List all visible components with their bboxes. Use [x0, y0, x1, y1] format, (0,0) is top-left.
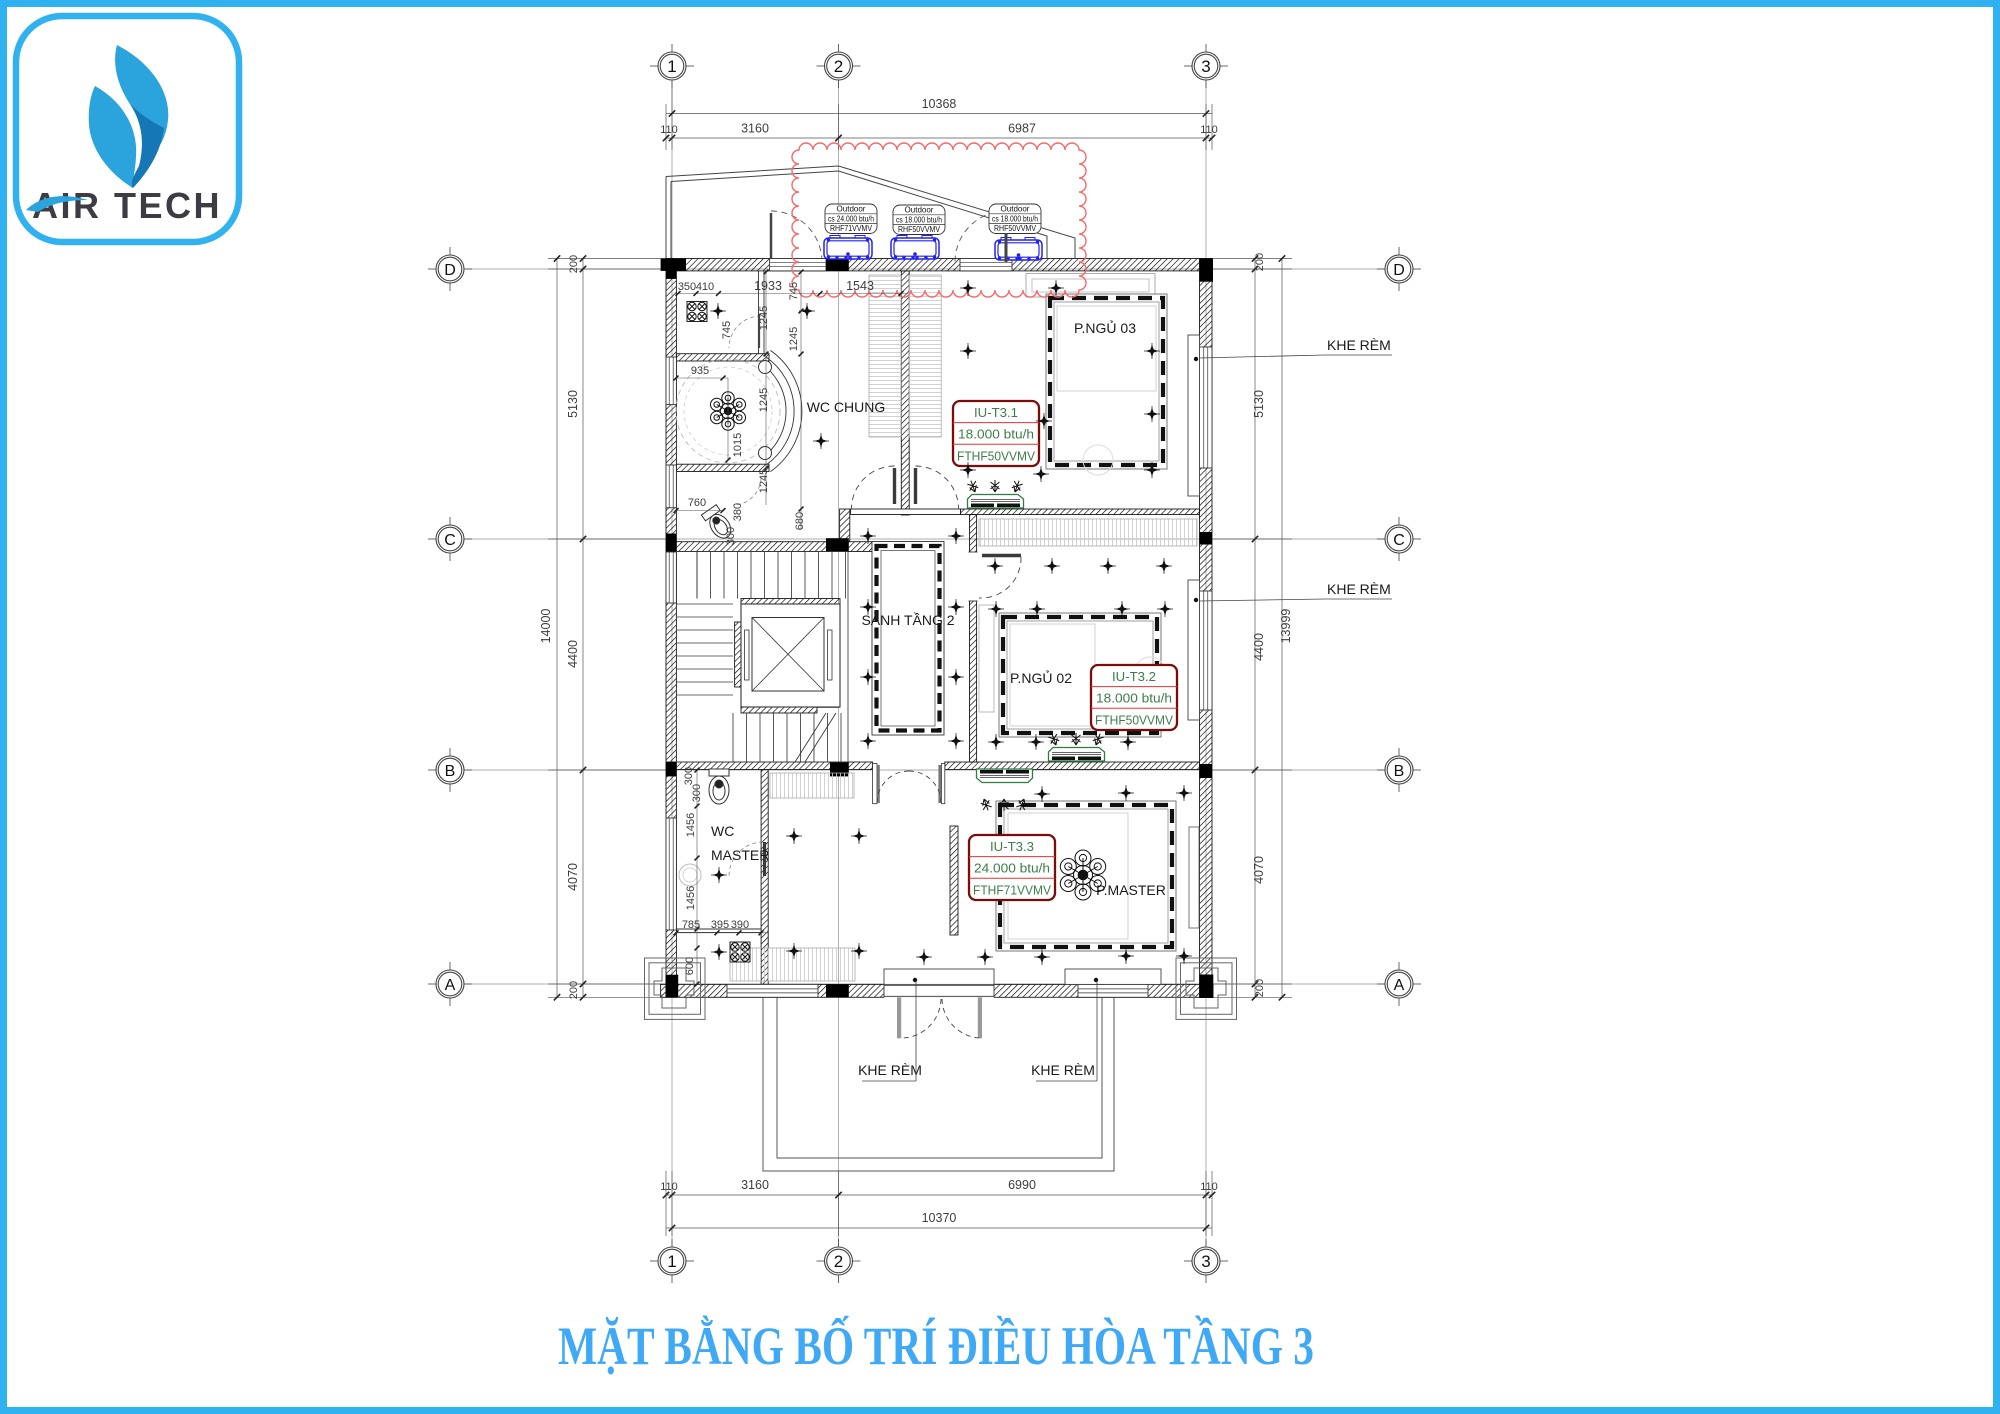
svg-text:A: A	[1394, 977, 1405, 994]
svg-text:110: 110	[660, 1181, 678, 1193]
svg-text:24.000 btu/h: 24.000 btu/h	[974, 861, 1050, 876]
svg-text:1245: 1245	[758, 388, 770, 412]
svg-text:cs 18.000 btu/h: cs 18.000 btu/h	[992, 214, 1038, 223]
svg-text:1456: 1456	[685, 813, 697, 837]
svg-text:IU-T3.2: IU-T3.2	[1112, 669, 1156, 684]
svg-text:MẶT BẰNG BỐ TRÍ ĐIỀU HÒA TẦNG: MẶT BẰNG BỐ TRÍ ĐIỀU HÒA TẦNG 3	[558, 1315, 1314, 1376]
svg-text:200: 200	[568, 255, 580, 273]
svg-text:WC: WC	[711, 823, 734, 839]
svg-text:6987: 6987	[1008, 122, 1036, 136]
svg-text:3160: 3160	[741, 122, 769, 136]
svg-text:KHE RÈM: KHE RÈM	[1327, 581, 1391, 597]
svg-text:KHE RÈM: KHE RÈM	[1031, 1062, 1095, 1078]
svg-text:IU-T3.3: IU-T3.3	[990, 839, 1034, 854]
svg-text:1933: 1933	[754, 279, 782, 293]
svg-text:P.NGỦ 02: P.NGỦ 02	[1010, 669, 1072, 686]
svg-text:1015: 1015	[732, 433, 744, 457]
svg-text:745: 745	[788, 282, 800, 300]
svg-text:760: 760	[688, 497, 706, 509]
svg-text:18.000 btu/h: 18.000 btu/h	[958, 427, 1034, 442]
svg-text:350: 350	[678, 281, 696, 293]
svg-text:IU-T3.1: IU-T3.1	[974, 405, 1018, 420]
svg-text:200: 200	[568, 981, 580, 999]
svg-text:3160: 3160	[741, 1178, 769, 1192]
svg-text:745: 745	[721, 321, 733, 339]
svg-text:300: 300	[725, 527, 737, 545]
svg-text:FTHF50VVMV: FTHF50VVMV	[957, 448, 1035, 463]
svg-text:1245: 1245	[758, 469, 770, 493]
svg-text:3: 3	[1201, 1252, 1210, 1271]
svg-text:4400: 4400	[1252, 633, 1266, 661]
svg-text:Outdoor: Outdoor	[905, 206, 934, 215]
svg-text:MASTER: MASTER	[711, 847, 769, 863]
svg-text:110: 110	[660, 124, 678, 136]
svg-text:1245: 1245	[758, 306, 770, 330]
svg-text:cs 24.000 btu/h: cs 24.000 btu/h	[828, 214, 874, 223]
svg-text:RHF71VVMV: RHF71VVMV	[830, 224, 873, 233]
svg-text:395: 395	[711, 919, 729, 931]
svg-text:AIR TECH: AIR TECH	[32, 185, 222, 226]
svg-text:1543: 1543	[846, 279, 874, 293]
svg-text:1: 1	[667, 1252, 676, 1271]
svg-text:KHE RÈM: KHE RÈM	[1327, 337, 1391, 353]
svg-text:1245: 1245	[788, 327, 800, 351]
svg-text:P.MASTER: P.MASTER	[1096, 882, 1166, 898]
svg-text:6990: 6990	[1008, 1178, 1036, 1192]
svg-text:D: D	[444, 262, 456, 279]
svg-text:410: 410	[696, 281, 714, 293]
svg-text:390: 390	[731, 919, 749, 931]
svg-text:1456: 1456	[685, 886, 697, 910]
svg-text:4070: 4070	[1252, 856, 1266, 884]
svg-text:110: 110	[1200, 1181, 1218, 1193]
svg-text:1: 1	[667, 57, 676, 76]
svg-text:4400: 4400	[566, 640, 580, 668]
svg-text:cs 18.000 btu/h: cs 18.000 btu/h	[896, 215, 942, 224]
svg-text:10370: 10370	[922, 1211, 957, 1225]
svg-text:P.NGỦ 03: P.NGỦ 03	[1074, 319, 1136, 336]
svg-text:KHE RÈM: KHE RÈM	[858, 1062, 922, 1078]
svg-text:FTHF71VVMV: FTHF71VVMV	[973, 882, 1051, 897]
svg-text:2: 2	[834, 57, 843, 76]
svg-text:SẢNH TẦNG 2: SẢNH TẦNG 2	[861, 612, 954, 628]
svg-text:600: 600	[684, 957, 696, 975]
svg-text:110: 110	[1200, 124, 1218, 136]
svg-text:5130: 5130	[566, 390, 580, 418]
svg-text:WC CHUNG: WC CHUNG	[807, 399, 886, 415]
svg-text:14000: 14000	[539, 609, 553, 644]
svg-text:3: 3	[1201, 57, 1210, 76]
svg-text:A: A	[445, 977, 456, 994]
svg-text:5130: 5130	[1252, 390, 1266, 418]
svg-text:200: 200	[1254, 253, 1266, 271]
svg-text:RHF50VVMV: RHF50VVMV	[898, 225, 941, 234]
svg-text:935: 935	[691, 365, 709, 377]
svg-text:680: 680	[794, 512, 806, 530]
svg-text:Outdoor: Outdoor	[837, 205, 866, 214]
svg-text:Outdoor: Outdoor	[1001, 205, 1030, 214]
svg-text:B: B	[445, 763, 456, 780]
svg-text:2: 2	[834, 1252, 843, 1271]
svg-text:13999: 13999	[1279, 609, 1293, 644]
svg-text:785: 785	[682, 919, 700, 931]
svg-text:C: C	[444, 532, 456, 549]
svg-text:FTHF50VVMV: FTHF50VVMV	[1095, 712, 1173, 727]
svg-text:B: B	[1394, 763, 1405, 780]
svg-text:C: C	[1393, 532, 1405, 549]
svg-text:18.000 btu/h: 18.000 btu/h	[1096, 691, 1172, 706]
svg-text:380: 380	[732, 503, 744, 521]
svg-text:10368: 10368	[922, 97, 957, 111]
svg-text:RHF50VVMV: RHF50VVMV	[994, 224, 1037, 233]
svg-text:300: 300	[683, 767, 695, 785]
svg-text:D: D	[1393, 262, 1405, 279]
svg-text:300: 300	[691, 784, 703, 802]
svg-text:200: 200	[1254, 979, 1266, 997]
svg-text:4070: 4070	[566, 863, 580, 891]
